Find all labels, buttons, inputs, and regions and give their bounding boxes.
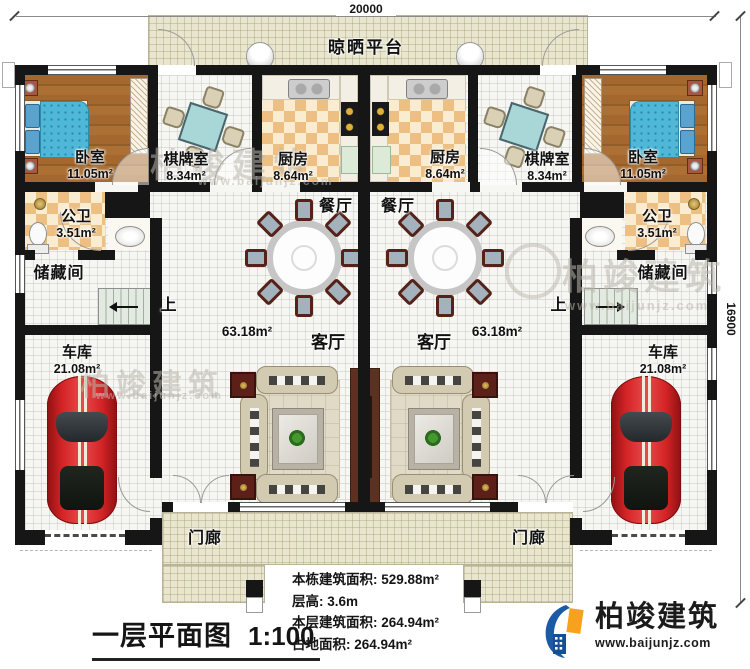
stat-total-area: 本栋建筑面积: 529.88m² <box>292 569 482 591</box>
mahjong-chair <box>482 105 507 129</box>
dining-chair <box>245 249 267 267</box>
room-area: 8.34m² <box>507 169 587 183</box>
room-area: 21.08m² <box>37 362 117 376</box>
label-storage-right: 储藏间 <box>630 265 696 283</box>
basin-right <box>585 226 615 247</box>
porch-column-base-left <box>246 597 263 613</box>
window-right-storage-2 <box>707 348 717 380</box>
room-area: 3.51m² <box>47 226 105 240</box>
sofa-left-top <box>256 366 338 394</box>
label-living-left: 客厅 <box>300 333 356 352</box>
front-wall-seg-4 <box>490 502 518 512</box>
dining-chair <box>295 199 313 221</box>
dimension-top-value: 20000 <box>336 2 396 16</box>
wall-center-spine <box>358 65 370 512</box>
room-name: 卧室 <box>50 150 130 167</box>
dining-chair <box>436 295 454 317</box>
label-storage-left: 储藏间 <box>26 265 92 283</box>
driveway-line-left <box>20 550 152 551</box>
basin-left <box>115 226 145 247</box>
shower-head-right <box>688 198 700 210</box>
room-area: 3.51m² <box>628 226 686 240</box>
wardrobe-left <box>130 78 148 154</box>
room-area: 8.64m² <box>405 167 485 181</box>
bed-left-pillow-2 <box>25 130 40 154</box>
label-mahjong-left: 棋牌室 8.34m² <box>146 152 226 183</box>
sofa-right-side <box>462 394 490 480</box>
drawing-title: 一层平面图 1:100 <box>92 614 320 661</box>
garage-left-front-1 <box>15 530 45 545</box>
label-kitchen-right: 厨房 8.64m² <box>405 150 485 181</box>
door-gap-porch-left <box>173 502 228 512</box>
front-wall-seg-3 <box>345 502 385 512</box>
wardrobe-right <box>584 78 602 154</box>
room-area: 21.08m² <box>623 362 703 376</box>
dining-chair <box>465 278 493 306</box>
title-scale: 1:100 <box>248 621 315 652</box>
wall-alcove-right <box>580 192 624 218</box>
title-text: 一层平面图 <box>92 614 232 653</box>
wall-alcove-left <box>105 192 150 218</box>
mahjong-chair <box>200 85 224 110</box>
dining-chair <box>465 210 493 238</box>
end-table-left-1 <box>230 372 256 398</box>
room-name: 卧室 <box>603 150 683 167</box>
dining-chair <box>256 210 284 238</box>
wall-storage-garage-left <box>15 325 150 335</box>
watermark-url: www.baijunjz.com <box>565 298 709 313</box>
watermark-logo-icon <box>505 243 561 299</box>
label-bedroom-right: 卧室 11.05m² <box>603 150 683 181</box>
room-name: 棋牌室 <box>146 152 226 169</box>
dining-chair <box>482 249 504 267</box>
wall-bath-left-bottom-2 <box>78 250 115 260</box>
dining-chair <box>386 249 408 267</box>
watermark-url: www.baijunjz.com <box>96 390 223 402</box>
room-name: 车库 <box>623 345 703 362</box>
label-mahjong-right: 棋牌室 8.34m² <box>507 152 587 183</box>
dining-chair <box>256 278 284 306</box>
garage-left-front-2 <box>125 530 162 545</box>
door-gap-platform-left <box>158 65 196 75</box>
label-living-right: 客厅 <box>406 333 462 352</box>
dining-chair <box>295 295 313 317</box>
room-name: 公卫 <box>628 209 686 226</box>
car-engine-window <box>60 466 104 510</box>
door-gap-porch-right <box>518 502 573 512</box>
stove-right <box>372 102 389 136</box>
stat-footprint: 占地面积: 264.94m² <box>292 634 482 656</box>
end-table-right-2 <box>472 474 498 500</box>
dining-chair <box>436 199 454 221</box>
stat-floor-height: 层高: 3.6m <box>292 591 482 613</box>
car-windshield <box>56 412 108 442</box>
front-wall-seg-1 <box>162 502 173 512</box>
label-garage-right: 车库 21.08m² <box>623 345 703 376</box>
nightstand-right-1 <box>687 80 703 96</box>
room-area: 11.05m² <box>603 167 683 181</box>
wall-storage-garage-right <box>582 325 717 335</box>
room-area: 11.05m² <box>50 167 130 181</box>
sofa-left-side <box>240 394 268 480</box>
end-table-left-2 <box>230 474 256 500</box>
plant-left <box>288 429 306 447</box>
label-garage-left: 车库 21.08m² <box>37 345 117 376</box>
window-right-bedroom <box>707 85 717 151</box>
door-gap-platform-right <box>540 65 576 75</box>
window-living-left <box>240 502 345 512</box>
end-table-right-1 <box>472 372 498 398</box>
garage-right-front-2 <box>685 530 717 545</box>
dimension-line-right <box>740 16 741 604</box>
exterior-pier-right <box>719 62 732 88</box>
mahjong-chair <box>521 85 545 110</box>
front-wall-seg-2 <box>228 502 240 512</box>
label-dining-left: 餐厅 <box>316 198 356 216</box>
brand-logo-icon <box>541 602 589 665</box>
brand-name: 柏竣建筑 <box>595 602 719 634</box>
room-name: 厨房 <box>405 150 485 167</box>
window-left-bedroom <box>15 85 25 151</box>
building-stats: 本栋建筑面积: 529.88m² 层高: 3.6m 本层建筑面积: 264.94… <box>292 569 482 655</box>
stove-left <box>341 102 358 136</box>
room-name: 棋牌室 <box>507 152 587 169</box>
room-area: 8.64m² <box>253 169 333 183</box>
shower-head-left <box>34 198 46 210</box>
mahjong-chair <box>541 124 566 148</box>
window-top-bedroom-left <box>48 65 116 75</box>
fridge-right <box>372 146 391 174</box>
window-living-right <box>385 502 490 512</box>
toilet-left <box>29 222 47 246</box>
plant-right <box>424 429 442 447</box>
room-name: 公卫 <box>47 209 105 226</box>
label-bath-right: 公卫 3.51m² <box>628 209 686 240</box>
dimension-right-value: 16900 <box>724 289 738 349</box>
wall-spine-left-upper <box>150 218 162 478</box>
bed-left-pillow-1 <box>25 104 40 128</box>
window-top-bedroom-right <box>600 65 666 75</box>
bed-right-pillow-1 <box>680 104 695 128</box>
garage-door-left <box>45 534 125 537</box>
sofa-right-top <box>392 366 474 394</box>
label-kitchen-left: 厨房 8.64m² <box>253 152 333 183</box>
label-stairs-left: 上 <box>158 297 180 315</box>
label-porch-left: 门廊 <box>180 530 230 548</box>
garage-door-right <box>612 534 685 537</box>
label-living-right-area: 63.18m² <box>457 324 537 339</box>
stat-floor-area: 本层建筑面积: 264.94m² <box>292 612 482 634</box>
car-right <box>611 376 681 524</box>
brand-website: www.baijunjz.com <box>595 636 719 650</box>
window-right-garage <box>707 400 717 470</box>
label-porch-right: 门廊 <box>504 530 554 548</box>
dining-chair <box>397 278 425 306</box>
toilet-right <box>687 222 705 246</box>
label-platform: 晾晒平台 <box>298 38 434 57</box>
window-left-storage <box>15 255 25 293</box>
sofa-right-bottom <box>392 474 474 504</box>
nightstand-right-2 <box>687 158 703 174</box>
dining-chair <box>324 278 352 306</box>
brand-block: 柏竣建筑 www.baijunjz.com <box>541 602 719 665</box>
garage-right-front-1 <box>570 530 612 545</box>
label-dining-right: 餐厅 <box>378 198 418 216</box>
exterior-pier-left <box>2 62 15 88</box>
floor-plan: 柏竣建筑 www.baijunjz.com 柏竣建筑 www.baijunjz.… <box>0 0 750 669</box>
car-windshield <box>620 412 672 442</box>
kitchen-sink-right <box>406 79 448 99</box>
dimension-line-top <box>16 16 716 17</box>
room-area: 8.34m² <box>146 169 226 183</box>
mahjong-chair <box>161 105 186 129</box>
label-bedroom-left: 卧室 11.05m² <box>50 150 130 181</box>
stairs-left-arrow <box>112 306 138 308</box>
label-bath-left: 公卫 3.51m² <box>47 209 105 240</box>
label-living-left-area: 63.18m² <box>207 324 287 339</box>
room-name: 车库 <box>37 345 117 362</box>
window-left-garage <box>15 400 25 470</box>
kitchen-sink-left <box>288 79 330 99</box>
sofa-left-bottom <box>256 474 338 504</box>
car-engine-window <box>624 466 668 510</box>
porch-column-left <box>246 580 263 597</box>
driveway-line-right <box>580 550 712 551</box>
opening-kitchen-right <box>432 182 470 192</box>
label-stairs-right: 上 <box>548 297 570 315</box>
room-name: 厨房 <box>253 152 333 169</box>
